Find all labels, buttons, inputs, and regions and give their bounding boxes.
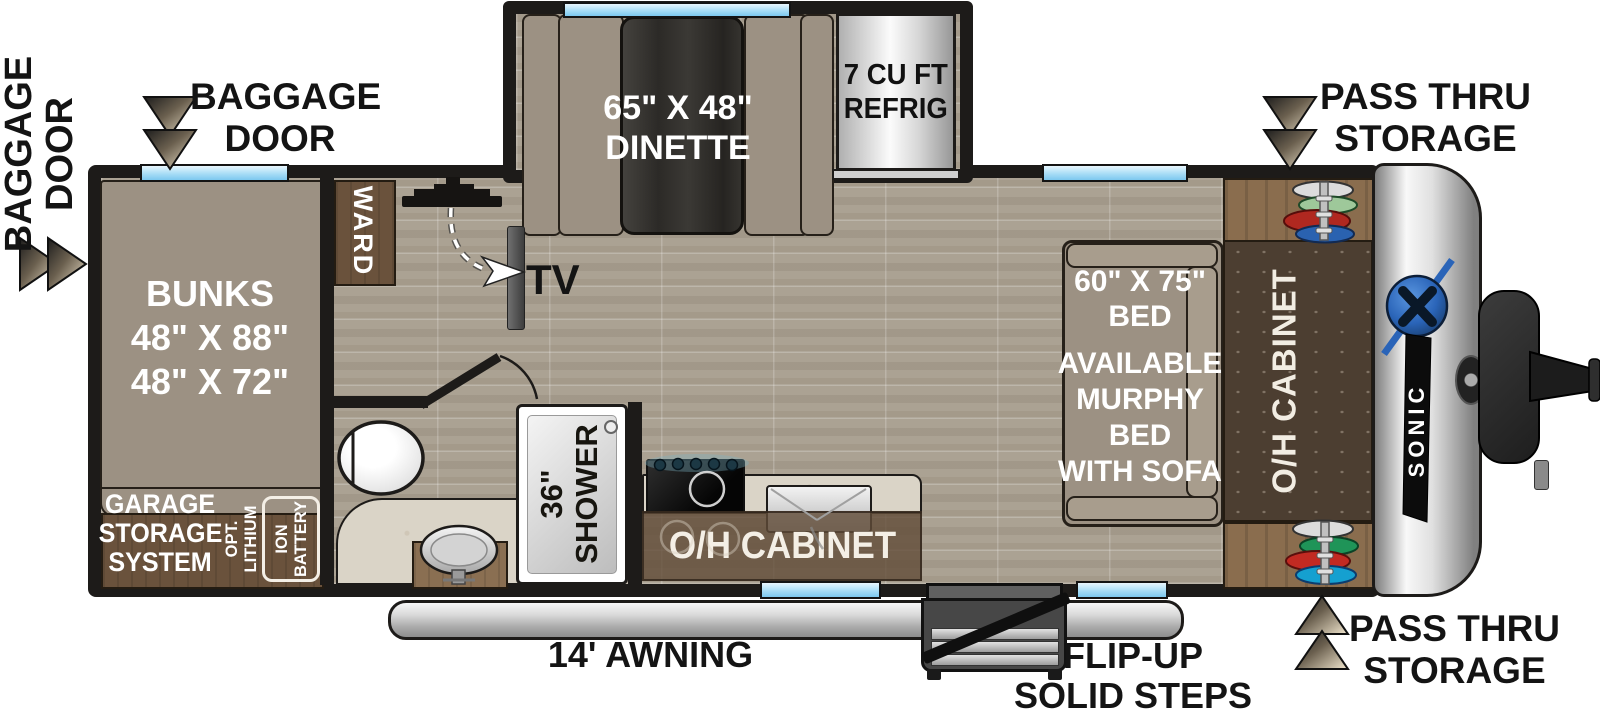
- ion-battery-label: ION BATTERY: [271, 494, 313, 584]
- opt-lithium-label: OPT. LITHIUM: [222, 490, 262, 588]
- hitch-icon: [1530, 352, 1600, 401]
- refrig-label-line2: REFRIG: [844, 92, 948, 126]
- bed-option-label: AVAILABLE MURPHY BED WITH SOFA: [1056, 346, 1224, 490]
- kitchen-overhead-label: O/H CABINET: [668, 525, 895, 568]
- sofa-armrest-bottom: [1066, 496, 1218, 521]
- right-overhead-label: O/H CABINET: [1264, 249, 1306, 514]
- steps-label: FLIP-UP SOLID STEPS: [1008, 636, 1258, 716]
- pass-thru-bottom-arrows-icon: [1296, 596, 1348, 669]
- step-foot: [927, 669, 941, 680]
- sonic-logo-text: SONIC: [1404, 345, 1430, 515]
- pass-thru-top-label: PASS THRU STORAGE: [1318, 76, 1533, 160]
- pass-thru-bottom-label: PASS THRU STORAGE: [1342, 608, 1567, 692]
- door-side-window: [1076, 581, 1168, 599]
- dinette-bench-right-back: [800, 14, 834, 236]
- ward-label: WARD: [347, 177, 379, 285]
- refrigerator-shelf: [832, 169, 960, 180]
- pass-thru-top-arrows-icon: [1264, 97, 1316, 169]
- bunkroom-wall: [320, 178, 334, 585]
- shower-kitchen-wall: [628, 402, 642, 585]
- dinette-label: 65" X 48" DINETTE: [592, 88, 764, 168]
- garage-storage-label: GARAGE STORAGE SYSTEM: [99, 490, 222, 577]
- stove: [646, 459, 745, 514]
- awning-label: 14' AWNING: [538, 634, 763, 676]
- bunk-window: [140, 164, 289, 182]
- tv-label: TV: [526, 256, 596, 304]
- baggage-door-top-label: BAGGAGE DOOR: [190, 76, 370, 160]
- bathroom-top-wall: [334, 396, 428, 408]
- tongue-jack: [1534, 460, 1549, 490]
- propane-cover: [1478, 290, 1540, 464]
- front-cabinet-top: [1223, 178, 1377, 244]
- bed-window: [1042, 164, 1188, 182]
- dinette-window: [563, 2, 791, 18]
- rv-floorplan: BUNKS 48" X 88" 48" X 72" GARAGE STORAGE…: [0, 0, 1600, 719]
- refrig-label-line1: 7 CU FT: [844, 58, 948, 92]
- tv-bracket-stem: [446, 177, 460, 190]
- front-cabinet-bottom: [1223, 522, 1377, 589]
- kitchen-window: [760, 581, 881, 599]
- tv-screen: [507, 226, 525, 330]
- baggage-door-side-label: BAGGAGE DOOR: [0, 51, 82, 257]
- refrigerator: 7 CU FT REFRIG: [836, 13, 956, 171]
- bed-size-label: 60" X 75" BED: [1062, 264, 1218, 334]
- baggage-top-arrows-icon: [144, 97, 196, 169]
- vanity-base-cabinet: [412, 541, 508, 589]
- bunks-label: BUNKS 48" X 88" 48" X 72": [100, 272, 320, 404]
- shower-drain: [604, 420, 618, 434]
- shower-label: 36" SHOWER: [533, 408, 605, 580]
- dinette-bench-left-back: [522, 14, 562, 236]
- kitchen-overhead-cabinet: O/H CABINET: [642, 511, 922, 581]
